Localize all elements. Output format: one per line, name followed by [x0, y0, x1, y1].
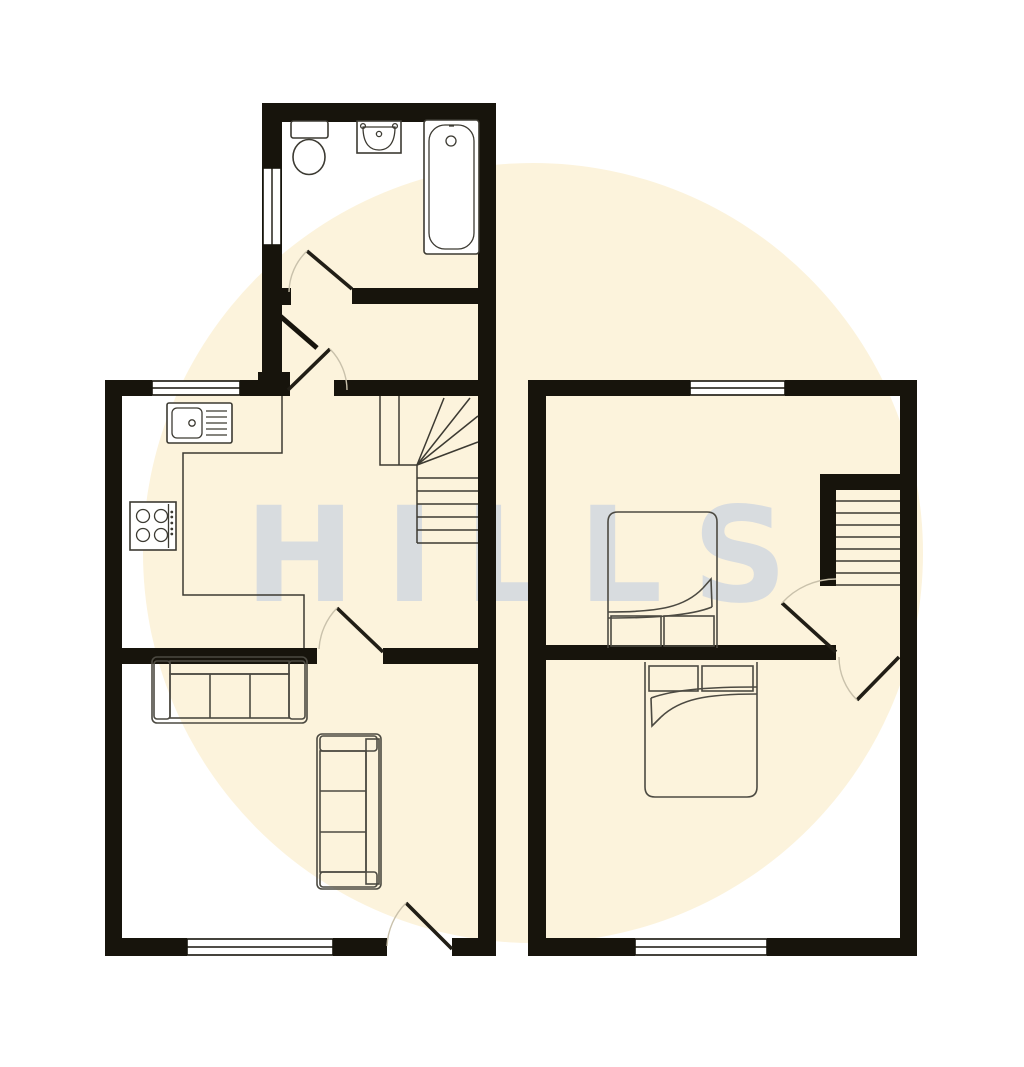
toilet [291, 121, 328, 175]
floorplan-svg: HILLS [0, 0, 1024, 1067]
basin [357, 121, 401, 153]
floorplan-canvas: HILLS [0, 0, 1024, 1067]
bedroom-back-window [635, 939, 767, 955]
kitchen-window [152, 381, 240, 395]
living-room-window [187, 939, 333, 955]
kitchen-sink [167, 403, 232, 443]
hob [130, 502, 176, 550]
bathtub [424, 120, 479, 254]
bathroom-window [263, 168, 281, 245]
bedroom-front-window [690, 381, 785, 395]
